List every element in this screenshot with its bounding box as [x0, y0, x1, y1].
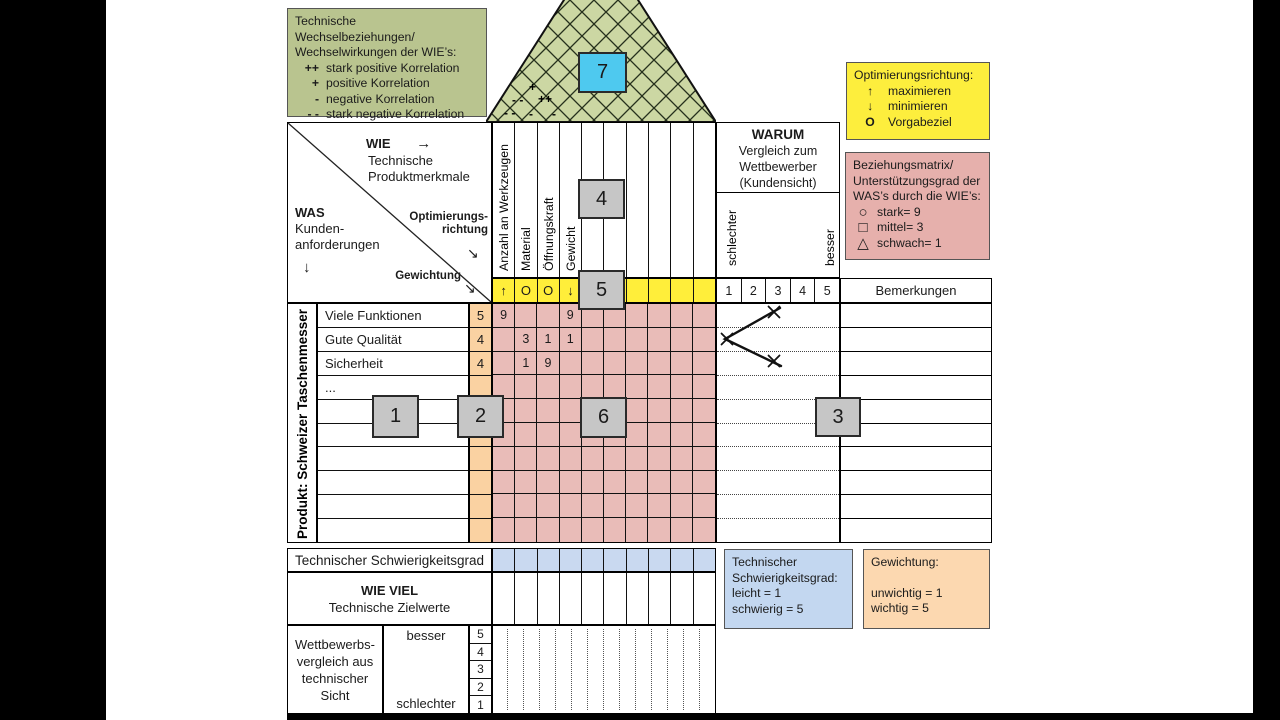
plot-gridline-2 — [539, 629, 540, 710]
matrix-cell-6-2 — [537, 447, 559, 471]
matrix-cell-9-6 — [626, 518, 648, 542]
tech-compare-label-2: vergleich aus — [297, 653, 374, 670]
remarks-header-label: Bemerkungen — [876, 283, 957, 298]
opt-direction-label-2: richtung — [388, 224, 488, 237]
was-down-arrow-icon: ↓ — [303, 259, 311, 276]
weight-cell-6 — [470, 447, 491, 471]
weight-cell-0: 5 — [470, 304, 491, 328]
matrix-cell-3-5 — [604, 375, 626, 399]
difficulty-label-box: Technischer Schwierigkeitsgrad — [287, 548, 492, 572]
matrix-cell-6-7 — [648, 447, 670, 471]
requirement-row-2: Sicherheit — [318, 352, 468, 376]
plot-gridline-5 — [587, 629, 588, 710]
requirement-row-8 — [318, 495, 468, 519]
matrix-cell-8-2 — [537, 494, 559, 518]
difficulty-cell-7 — [649, 549, 671, 571]
matrix-cell-1-2: 1 — [537, 328, 559, 352]
matrix-cell-3-4 — [582, 375, 604, 399]
matrix-cell-4-1 — [515, 399, 537, 423]
relationship-legend-title-3: WAS’s durch die WIE’s: — [853, 189, 982, 205]
matrix-cell-7-9 — [693, 471, 715, 495]
tech-compare-scale: 54321 — [469, 625, 492, 714]
matrix-cell-5-1 — [515, 423, 537, 447]
matrix-cell-4-2 — [537, 399, 559, 423]
corr-label-negative: negative Korrelation — [326, 92, 434, 108]
matrix-cell-3-8 — [671, 375, 693, 399]
relationship-legend-title-2: Unterstützungsgrad der — [853, 174, 982, 190]
marker-5: 5 — [578, 270, 625, 310]
marker-1: 1 — [372, 395, 419, 438]
target-cell-0 — [493, 573, 515, 624]
circle-icon: ○ — [853, 205, 873, 221]
difficulty-legend-line-1: Technischer — [732, 555, 845, 571]
minimize-arrow-icon: ↓ — [860, 99, 880, 115]
remarks-header: Bemerkungen — [840, 278, 992, 303]
tech-compare-worse-label: schlechter — [384, 696, 468, 711]
matrix-cell-2-9 — [693, 352, 715, 376]
difficulty-cell-0 — [493, 549, 515, 571]
weight-cell-2: 4 — [470, 352, 491, 376]
difficulty-legend: Technischer Schwierigkeitsgrad: leicht =… — [724, 549, 853, 629]
target-cell-8 — [671, 573, 693, 624]
matrix-cell-0-7 — [648, 304, 670, 328]
matrix-cell-3-6 — [626, 375, 648, 399]
was-sub-2: anforderungen — [295, 237, 380, 253]
header-column-8 — [671, 123, 693, 277]
warum-row-6 — [717, 447, 839, 471]
requirement-row-9 — [318, 519, 468, 542]
correlation-legend-title-1: Technische Wechselbeziehungen/ — [295, 14, 479, 45]
wie-label: WIE — [366, 136, 391, 151]
matrix-cell-9-7 — [648, 518, 670, 542]
matrix-cell-2-7 — [648, 352, 670, 376]
corr-symbol-strong-positive: ++ — [295, 61, 319, 77]
tech-compare-scale-0: 5 — [470, 626, 491, 644]
optimization-cell-0: ↑ — [493, 279, 515, 302]
requirement-row-0: Viele Funktionen — [318, 304, 468, 328]
plot-gridline-7 — [619, 629, 620, 710]
target-symbol-icon: O — [860, 115, 880, 131]
matrix-cell-6-6 — [626, 447, 648, 471]
matrix-cell-8-7 — [648, 494, 670, 518]
tech-compare-scale-4: 1 — [470, 696, 491, 713]
header-column-1 — [515, 123, 537, 277]
matrix-cell-2-5 — [604, 352, 626, 376]
warum-box: WARUM Vergleich zum Wettbewerber (Kunden… — [716, 122, 840, 278]
matrix-cell-9-3 — [560, 518, 582, 542]
letterbox-bottom — [287, 713, 1253, 720]
matrix-cell-1-0 — [493, 328, 515, 352]
matrix-cell-7-5 — [604, 471, 626, 495]
weighting-legend-line-2: wichtig = 5 — [871, 601, 982, 617]
weighting-legend-line-1: unwichtig = 1 — [871, 586, 982, 602]
weighting-arrow-icon: ↘ — [464, 280, 476, 297]
matrix-cell-6-4 — [582, 447, 604, 471]
header-column-2 — [538, 123, 560, 277]
remarks-row-4 — [841, 400, 991, 424]
header-column-7 — [649, 123, 671, 277]
header-column-9 — [694, 123, 715, 277]
matrix-cell-4-9 — [693, 399, 715, 423]
matrix-cell-8-4 — [582, 494, 604, 518]
matrix-cell-7-2 — [537, 471, 559, 495]
marker-6: 6 — [580, 397, 627, 438]
tech-compare-label-box: Wettbewerbs- vergleich aus technischer S… — [287, 625, 383, 714]
target-cell-5 — [604, 573, 626, 624]
roof-symbol-5: - — [552, 107, 556, 121]
tech-compare-label-3: technischer — [302, 670, 368, 687]
strong-label: stark= 9 — [877, 205, 921, 221]
difficulty-cell-6 — [627, 549, 649, 571]
target-label: Vorgabeziel — [888, 115, 952, 131]
tech-compare-label-4: Sicht — [321, 687, 350, 704]
product-label-box — [287, 303, 317, 543]
minimize-label: minimieren — [888, 99, 948, 115]
difficulty-cell-9 — [694, 549, 715, 571]
matrix-cell-7-8 — [671, 471, 693, 495]
difficulty-cell-4 — [582, 549, 604, 571]
matrix-cell-1-4 — [582, 328, 604, 352]
remarks-row-2 — [841, 352, 991, 376]
matrix-cell-1-6 — [626, 328, 648, 352]
matrix-cell-7-1 — [515, 471, 537, 495]
remarks-row-7 — [841, 471, 991, 495]
warum-row-9 — [717, 519, 839, 542]
marker-4: 4 — [578, 179, 625, 219]
warum-title: WARUM — [752, 127, 805, 142]
roof-symbol-1: - - — [512, 93, 523, 107]
matrix-cell-6-8 — [671, 447, 693, 471]
warum-scale-2: 3 — [766, 279, 791, 302]
remarks-body — [840, 303, 992, 543]
requirement-row-7 — [318, 471, 468, 495]
wie-sub-2: Produktmerkmale — [368, 169, 470, 185]
matrix-cell-3-3 — [560, 375, 582, 399]
matrix-cell-2-4 — [582, 352, 604, 376]
warum-scale-4: 5 — [815, 279, 839, 302]
corr-label-strong-negative: stark negative Korrelation — [326, 107, 464, 123]
plot-gridline-8 — [635, 629, 636, 710]
plot-gridline-1 — [523, 629, 524, 710]
plot-gridline-0 — [507, 629, 508, 710]
matrix-cell-7-0 — [493, 471, 515, 495]
warum-sub-1: Vergleich zum — [717, 143, 839, 159]
matrix-cell-2-6 — [626, 352, 648, 376]
was-sub-1: Kunden- — [295, 221, 380, 237]
remarks-row-5 — [841, 424, 991, 448]
plot-gridline-6 — [603, 629, 604, 710]
weighting-label: Gewichtung — [381, 270, 461, 283]
optimization-cell-7 — [649, 279, 671, 302]
optimization-cell-6 — [627, 279, 649, 302]
matrix-cell-9-5 — [604, 518, 626, 542]
matrix-cell-8-8 — [671, 494, 693, 518]
difficulty-legend-line-3: leicht = 1 — [732, 586, 845, 602]
weighting-legend-title: Gewichtung: — [871, 555, 982, 571]
opt-direction-label-1: Optimierungs- — [388, 211, 488, 224]
tech-compare-direction-box: besser schlechter — [383, 625, 469, 714]
matrix-cell-0-6 — [626, 304, 648, 328]
matrix-cell-2-2: 9 — [537, 352, 559, 376]
letterbox-left — [0, 0, 106, 720]
matrix-cell-7-6 — [626, 471, 648, 495]
opt-direction-arrow-icon: ↘ — [467, 245, 479, 262]
target-cell-7 — [649, 573, 671, 624]
target-cell-2 — [538, 573, 560, 624]
remarks-row-3 — [841, 376, 991, 400]
warum-sub-2: Wettbewerber — [717, 159, 839, 175]
weak-label: schwach= 1 — [877, 236, 942, 252]
matrix-cell-5-3 — [560, 423, 582, 447]
remarks-row-9 — [841, 519, 991, 542]
warum-row-2 — [717, 352, 839, 376]
matrix-cell-6-3 — [560, 447, 582, 471]
maximize-arrow-icon: ↑ — [860, 84, 880, 100]
optimization-cell-1: O — [515, 279, 537, 302]
was-wie-header-box: WIE → Technische Produktmerkmale WAS Kun… — [287, 122, 492, 303]
tech-compare-better-label: besser — [384, 628, 468, 643]
marker-2: 2 — [457, 395, 504, 438]
corr-symbol-strong-negative: - - — [295, 107, 319, 123]
difficulty-cell-8 — [671, 549, 693, 571]
weight-cell-7 — [470, 471, 491, 495]
corr-symbol-negative: - — [295, 92, 319, 108]
warum-row-8 — [717, 495, 839, 519]
plot-gridline-4 — [571, 629, 572, 710]
matrix-cell-5-8 — [671, 423, 693, 447]
matrix-cell-1-9 — [693, 328, 715, 352]
matrix-cell-5-2 — [537, 423, 559, 447]
house-of-quality-slide: + - - ++ - - - - Technische Wechselbezie… — [0, 0, 1280, 720]
matrix-cell-1-7 — [648, 328, 670, 352]
requirement-row-1: Gute Qualität — [318, 328, 468, 352]
relationship-legend-title-1: Beziehungsmatrix/ — [853, 158, 982, 174]
matrix-cell-1-1: 3 — [515, 328, 537, 352]
matrix-cell-8-9 — [693, 494, 715, 518]
warum-scale-3: 4 — [791, 279, 816, 302]
difficulty-cells — [492, 548, 716, 572]
weight-cell-1: 4 — [470, 328, 491, 352]
requirement-row-6 — [318, 447, 468, 471]
warum-row-1 — [717, 328, 839, 352]
marker-3: 3 — [815, 397, 861, 437]
optimization-legend-title: Optimierungsrichtung: — [854, 68, 982, 84]
warum-scale-0: 1 — [717, 279, 742, 302]
target-cell-9 — [694, 573, 715, 624]
matrix-cell-2-3 — [560, 352, 582, 376]
target-cell-6 — [627, 573, 649, 624]
corr-label-strong-positive: stark positive Korrelation — [326, 61, 459, 77]
maximize-label: maximieren — [888, 84, 951, 100]
roof-symbol-4: - — [529, 107, 533, 121]
matrix-cell-3-9 — [693, 375, 715, 399]
wie-arrow-icon: → — [416, 135, 431, 152]
matrix-cell-4-6 — [626, 399, 648, 423]
correlation-legend-title-2: Wechselwirkungen der WIE’s: — [295, 45, 479, 61]
difficulty-cell-5 — [604, 549, 626, 571]
difficulty-row-label: Technischer Schwierigkeitsgrad — [295, 553, 484, 568]
matrix-cell-7-7 — [648, 471, 670, 495]
warum-scale-row: 12345 — [716, 278, 840, 303]
tech-compare-label-1: Wettbewerbs- — [295, 636, 375, 653]
matrix-cell-0-1 — [515, 304, 537, 328]
matrix-cell-3-7 — [648, 375, 670, 399]
matrix-cell-2-8 — [671, 352, 693, 376]
tech-compare-scale-1: 4 — [470, 644, 491, 662]
roof-symbol-3: - - — [504, 106, 515, 120]
matrix-cell-8-0 — [493, 494, 515, 518]
matrix-cell-1-3: 1 — [560, 328, 582, 352]
relationship-legend: Beziehungsmatrix/ Unterstützungsgrad der… — [845, 152, 990, 260]
matrix-cell-8-6 — [626, 494, 648, 518]
difficulty-cell-1 — [515, 549, 537, 571]
target-cells — [492, 572, 716, 625]
correlation-legend: Technische Wechselbeziehungen/ Wechselwi… — [287, 8, 487, 117]
difficulty-legend-line-4: schwierig = 5 — [732, 602, 845, 618]
matrix-cell-5-9 — [693, 423, 715, 447]
remarks-row-6 — [841, 447, 991, 471]
remarks-row-0 — [841, 304, 991, 328]
matrix-cell-5-6 — [626, 423, 648, 447]
matrix-cell-8-1 — [515, 494, 537, 518]
matrix-cell-9-0 — [493, 518, 515, 542]
corr-label-positive: positive Korrelation — [326, 76, 430, 92]
wieviel-box: WIE VIEL Technische Zielwerte — [287, 572, 492, 625]
weighting-legend: Gewichtung: unwichtig = 1 wichtig = 5 — [863, 549, 990, 629]
optimization-cell-9 — [694, 279, 715, 302]
matrix-cell-8-5 — [604, 494, 626, 518]
matrix-cell-1-5 — [604, 328, 626, 352]
matrix-cell-0-0: 9 — [493, 304, 515, 328]
matrix-cell-8-3 — [560, 494, 582, 518]
matrix-cell-9-8 — [671, 518, 693, 542]
matrix-cell-2-0 — [493, 352, 515, 376]
optimization-legend: Optimierungsrichtung: ↑maximieren ↓minim… — [846, 62, 990, 140]
target-cell-1 — [515, 573, 537, 624]
roof-symbol-0: + — [529, 80, 536, 94]
header-column-6 — [627, 123, 649, 277]
difficulty-cell-3 — [560, 549, 582, 571]
plot-gridline-9 — [651, 629, 652, 710]
matrix-cell-5-7 — [648, 423, 670, 447]
target-cell-3 — [560, 573, 582, 624]
matrix-cell-6-9 — [693, 447, 715, 471]
difficulty-cell-2 — [538, 549, 560, 571]
was-label: WAS — [295, 205, 325, 220]
matrix-cell-2-1: 1 — [515, 352, 537, 376]
matrix-cell-7-3 — [560, 471, 582, 495]
matrix-cell-9-1 — [515, 518, 537, 542]
weight-cell-8 — [470, 495, 491, 519]
letterbox-right — [1253, 0, 1280, 720]
tech-compare-scale-2: 3 — [470, 661, 491, 679]
warum-row-0 — [717, 304, 839, 328]
marker-7: 7 — [578, 52, 627, 93]
header-column-0 — [493, 123, 515, 277]
matrix-cell-3-1 — [515, 375, 537, 399]
difficulty-legend-line-2: Schwierigkeitsgrad: — [732, 571, 845, 587]
matrix-cell-4-8 — [671, 399, 693, 423]
plot-gridline-10 — [667, 629, 668, 710]
triangle-icon: △ — [853, 236, 873, 252]
roof-symbol-2: ++ — [538, 92, 552, 106]
warum-row-7 — [717, 471, 839, 495]
warum-scale-1: 2 — [742, 279, 767, 302]
matrix-cell-6-1 — [515, 447, 537, 471]
matrix-cell-0-8 — [671, 304, 693, 328]
matrix-cell-9-2 — [537, 518, 559, 542]
matrix-cell-9-9 — [693, 518, 715, 542]
tech-compare-scale-3: 2 — [470, 679, 491, 697]
optimization-cell-8 — [671, 279, 693, 302]
plot-gridline-12 — [699, 629, 700, 710]
matrix-cell-1-8 — [671, 328, 693, 352]
matrix-cell-0-2 — [537, 304, 559, 328]
matrix-cell-9-4 — [582, 518, 604, 542]
optimization-cell-2: O — [538, 279, 560, 302]
weight-cell-9 — [470, 519, 491, 542]
matrix-cell-3-2 — [537, 375, 559, 399]
wieviel-title: WIE VIEL — [361, 583, 418, 598]
wie-sub-1: Technische — [368, 153, 470, 169]
remarks-row-1 — [841, 328, 991, 352]
square-icon: □ — [853, 220, 873, 236]
matrix-cell-7-4 — [582, 471, 604, 495]
matrix-cell-6-5 — [604, 447, 626, 471]
tech-compare-plot — [492, 625, 716, 714]
matrix-cell-4-7 — [648, 399, 670, 423]
remarks-row-8 — [841, 495, 991, 519]
plot-gridline-11 — [683, 629, 684, 710]
warum-sub-3: (Kundensicht) — [717, 175, 839, 191]
matrix-cell-6-0 — [493, 447, 515, 471]
wieviel-sub: Technische Zielwerte — [329, 599, 450, 616]
corr-symbol-positive: + — [295, 76, 319, 92]
target-cell-4 — [582, 573, 604, 624]
matrix-cell-4-3 — [560, 399, 582, 423]
warum-divider — [717, 192, 839, 193]
plot-gridline-3 — [555, 629, 556, 710]
medium-label: mittel= 3 — [877, 220, 923, 236]
matrix-cell-0-9 — [693, 304, 715, 328]
